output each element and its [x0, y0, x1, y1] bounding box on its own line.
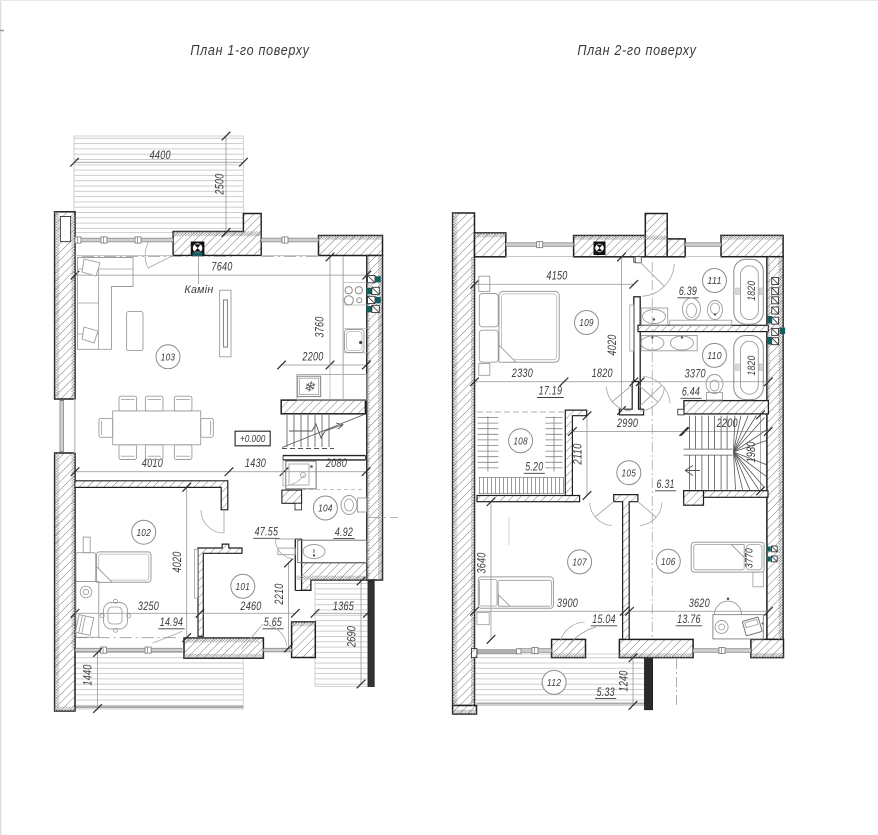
svg-text:6.44: 6.44	[682, 387, 700, 399]
svg-text:4.92: 4.92	[335, 527, 353, 539]
svg-text:3250: 3250	[138, 601, 159, 613]
svg-text:5.20: 5.20	[525, 462, 543, 474]
svg-text:3640: 3640	[477, 552, 489, 573]
svg-text:112: 112	[547, 677, 562, 689]
svg-text:108: 108	[513, 435, 528, 447]
svg-text:План 2-го поверху: План 2-го поверху	[577, 43, 696, 59]
svg-text:1430: 1430	[245, 458, 266, 470]
svg-text:14.94: 14.94	[160, 617, 184, 629]
svg-text:1820: 1820	[746, 280, 758, 301]
svg-text:17.19: 17.19	[539, 386, 563, 398]
svg-text:15.04: 15.04	[592, 614, 616, 626]
svg-text:2990: 2990	[616, 418, 638, 430]
svg-text:2210: 2210	[274, 583, 286, 605]
svg-text:+0.000: +0.000	[240, 434, 266, 445]
svg-text:4150: 4150	[546, 271, 567, 283]
svg-text:47.55: 47.55	[255, 527, 279, 539]
svg-text:104: 104	[318, 503, 333, 515]
svg-text:5.33: 5.33	[597, 687, 615, 699]
svg-text:4400: 4400	[150, 150, 171, 162]
svg-text:105: 105	[622, 467, 637, 479]
svg-text:Камін: Камін	[184, 284, 213, 296]
svg-text:3620: 3620	[689, 598, 710, 610]
svg-text:106: 106	[661, 556, 676, 568]
svg-text:1240: 1240	[619, 670, 631, 691]
svg-text:1820: 1820	[746, 355, 758, 376]
svg-text:111: 111	[707, 275, 722, 287]
svg-text:3900: 3900	[557, 598, 578, 610]
svg-text:3370: 3370	[685, 369, 706, 381]
svg-text:107: 107	[572, 557, 587, 569]
svg-text:1365: 1365	[333, 601, 354, 613]
svg-text:4020: 4020	[607, 334, 619, 355]
svg-text:13.76: 13.76	[677, 614, 701, 626]
svg-text:2200: 2200	[302, 352, 324, 364]
svg-text:1440: 1440	[83, 664, 95, 685]
svg-text:101: 101	[236, 581, 251, 593]
svg-text:102: 102	[136, 527, 151, 539]
svg-text:110: 110	[707, 350, 722, 362]
svg-text:6.31: 6.31	[657, 479, 675, 491]
svg-text:7640: 7640	[211, 262, 232, 274]
svg-text:2110: 2110	[573, 443, 585, 465]
svg-text:6.39: 6.39	[679, 286, 697, 298]
svg-text:План 1-го поверху: План 1-го поверху	[190, 43, 309, 59]
svg-text:2690: 2690	[346, 626, 358, 648]
svg-text:2330: 2330	[511, 368, 533, 380]
svg-text:1820: 1820	[592, 368, 613, 380]
svg-text:2460: 2460	[240, 601, 262, 613]
svg-text:109: 109	[579, 317, 594, 329]
svg-text:2500: 2500	[215, 173, 227, 195]
svg-text:103: 103	[161, 351, 176, 363]
svg-text:❄: ❄	[303, 379, 316, 395]
svg-text:4020: 4020	[172, 551, 184, 572]
svg-text:3760: 3760	[315, 316, 327, 337]
svg-text:3770: 3770	[744, 547, 756, 568]
svg-text:2080: 2080	[325, 458, 347, 470]
